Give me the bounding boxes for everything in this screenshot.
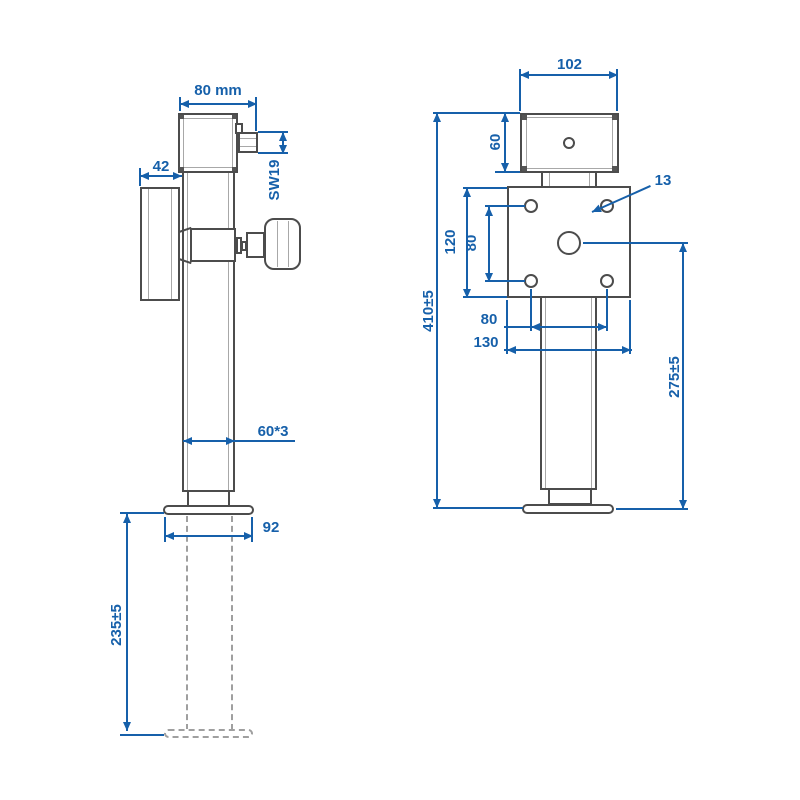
hex-flat-line <box>240 138 256 139</box>
dim-extension-line <box>583 242 688 244</box>
dim-label-tube-section: 60*3 <box>250 423 296 441</box>
dim-extension-line <box>120 734 164 736</box>
dim-arrow <box>485 207 493 216</box>
dim-label-hex-drive: SW19 <box>266 150 286 210</box>
front-foot-plate <box>522 504 614 514</box>
neck-inner-line <box>549 171 550 187</box>
dim-arrow <box>226 437 235 445</box>
dim-line <box>126 514 128 731</box>
knob-inner-line <box>277 221 278 267</box>
gearbox-inner-frame <box>183 118 233 168</box>
dim-arrow <box>140 172 149 180</box>
gearbox-center-hole <box>563 137 575 149</box>
bracket-inner-line <box>148 189 149 299</box>
dim-line <box>165 535 253 537</box>
dim-arrow <box>679 243 687 252</box>
hex-flat-line <box>240 146 256 147</box>
dim-arrow <box>173 172 182 180</box>
dim-extension-line <box>629 300 631 354</box>
dim-label-hole-spacing-vertical: 80 <box>463 213 483 273</box>
gearbox-corner-mark <box>522 166 527 171</box>
dim-extension-line <box>506 300 508 354</box>
hex-drive-stub <box>238 132 258 153</box>
dim-arrow <box>507 346 516 354</box>
side-foot-plate <box>163 505 254 515</box>
plate-bolt-hole <box>600 274 614 288</box>
front-inner-leg-stub <box>548 490 592 505</box>
dim-label-gearbox-width: 102 <box>520 56 619 74</box>
dim-label-drop-extension: 235±5 <box>108 590 128 660</box>
dim-extension-line <box>463 187 507 189</box>
dim-extension-line <box>485 205 525 207</box>
dim-extension-line <box>530 289 532 331</box>
dim-line <box>682 243 684 509</box>
extended-leg-dashed-line <box>186 516 188 730</box>
dim-extension-line <box>519 69 521 111</box>
technical-drawing-canvas: 80 mm 42 SW19 60*3 92 235±5 <box>0 0 800 800</box>
dim-arrow <box>165 532 174 540</box>
knob-inner-line <box>288 221 289 267</box>
dim-arrow <box>279 132 287 141</box>
dim-line <box>504 326 608 328</box>
gearbox-corner-mark <box>232 167 236 171</box>
dim-label-overall-width: 80 mm <box>178 82 258 100</box>
dim-extension-line <box>120 512 164 514</box>
gearbox-corner-mark <box>232 115 236 119</box>
neck-inner-line <box>589 171 590 187</box>
crank-collar-left-edge <box>178 233 180 258</box>
extended-leg-dashed-line <box>231 516 233 730</box>
dim-extension-line <box>616 508 688 510</box>
dim-extension-line <box>485 280 525 282</box>
dim-arrow <box>463 188 471 197</box>
dim-line <box>183 440 295 442</box>
dim-extension-line <box>463 296 507 298</box>
dim-extension-line <box>139 168 141 186</box>
dim-extension-line <box>495 171 520 173</box>
dim-arrow <box>520 71 529 79</box>
dim-arrow <box>123 722 131 731</box>
dim-extension-line <box>433 112 520 114</box>
dim-arrow <box>433 113 441 122</box>
gearbox-corner-mark <box>612 115 617 120</box>
dim-line <box>520 74 618 76</box>
dim-line <box>436 113 438 508</box>
crank-shaft <box>246 232 265 258</box>
bracket-inner-line <box>171 189 172 299</box>
dim-arrow <box>531 323 540 331</box>
dim-label-foot-width: 92 <box>256 519 286 537</box>
dim-extension-line <box>258 152 288 154</box>
dim-extension-line <box>606 289 608 331</box>
dim-extension-line <box>251 517 253 542</box>
dim-label-hole-spacing-horizontal: 80 <box>476 311 502 329</box>
dim-extension-line <box>164 517 166 542</box>
gearbox-corner-mark <box>180 115 184 119</box>
plate-bolt-hole <box>524 199 538 213</box>
dim-extension-line <box>258 131 288 133</box>
dim-label-plate-width: 130 <box>470 334 502 352</box>
dim-arrow <box>123 514 131 523</box>
dim-line <box>180 103 257 105</box>
dim-arrow <box>180 100 189 108</box>
extended-foot-dashed <box>164 729 253 738</box>
crank-collar <box>190 228 236 262</box>
plate-center-hole <box>557 231 581 255</box>
dim-label-plate-height: 120 <box>442 207 462 277</box>
dim-arrow <box>183 437 192 445</box>
dim-extension-line <box>255 97 257 131</box>
dim-label-hole-diameter: 13 <box>650 172 676 190</box>
dim-extension-line <box>616 69 618 111</box>
plate-bolt-hole <box>524 274 538 288</box>
gearbox-corner-mark <box>522 115 527 120</box>
gearbox-corner-mark <box>612 166 617 171</box>
crank-knob <box>264 218 301 270</box>
dim-arrow <box>501 113 509 122</box>
dim-extension-line <box>433 507 523 509</box>
dim-extension-line <box>179 97 181 111</box>
dim-line <box>504 349 632 351</box>
side-mounting-bracket <box>140 187 180 301</box>
dim-line <box>488 207 490 282</box>
